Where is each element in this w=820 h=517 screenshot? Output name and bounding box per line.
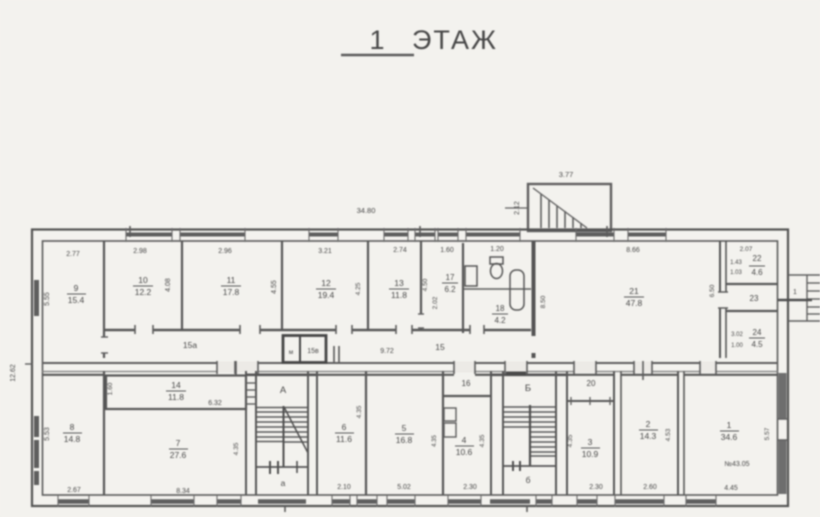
svg-text:10.9: 10.9	[582, 449, 599, 459]
svg-text:2.77: 2.77	[66, 251, 80, 258]
svg-text:а: а	[281, 478, 286, 488]
svg-text:8: 8	[70, 422, 75, 432]
svg-text:2.30: 2.30	[463, 484, 477, 491]
svg-text:16.8: 16.8	[396, 435, 413, 445]
svg-text:2.10: 2.10	[337, 484, 351, 491]
svg-text:1.20: 1.20	[490, 246, 504, 253]
svg-text:6: 6	[342, 422, 347, 432]
svg-text:7: 7	[176, 438, 181, 448]
svg-text:4.6: 4.6	[751, 268, 763, 277]
svg-text:б: б	[526, 475, 531, 485]
svg-text:15: 15	[435, 342, 445, 352]
svg-text:3.02: 3.02	[731, 332, 743, 338]
svg-text:1.00: 1.00	[731, 343, 743, 349]
svg-text:4.35: 4.35	[479, 434, 486, 447]
svg-text:5.55: 5.55	[44, 292, 51, 306]
svg-text:21: 21	[629, 286, 639, 296]
svg-text:23: 23	[750, 294, 759, 303]
svg-text:4.08: 4.08	[165, 278, 172, 292]
svg-text:11: 11	[227, 275, 236, 285]
svg-text:1: 1	[793, 289, 797, 296]
svg-text:10.6: 10.6	[456, 447, 473, 457]
svg-text:20: 20	[587, 379, 596, 388]
svg-text:15а: 15а	[183, 340, 197, 350]
svg-text:14.8: 14.8	[64, 434, 81, 444]
svg-text:11.6: 11.6	[336, 434, 352, 444]
svg-text:4.35: 4.35	[432, 435, 438, 447]
svg-text:5.53: 5.53	[44, 427, 51, 441]
svg-text:6.2: 6.2	[444, 285, 456, 294]
svg-text:3.77: 3.77	[559, 170, 574, 179]
svg-text:14.3: 14.3	[640, 431, 657, 441]
svg-text:10: 10	[138, 275, 148, 285]
svg-text:22: 22	[753, 254, 762, 263]
svg-text:11.8: 11.8	[168, 392, 184, 402]
svg-text:27.6: 27.6	[170, 450, 187, 460]
svg-text:4.5: 4.5	[751, 340, 763, 349]
svg-text:15.4: 15.4	[68, 295, 85, 305]
svg-text:1.43: 1.43	[730, 260, 742, 266]
svg-text:18: 18	[496, 304, 505, 313]
svg-text:13: 13	[394, 278, 404, 288]
svg-text:5.02: 5.02	[397, 484, 411, 491]
svg-text:6.50: 6.50	[709, 284, 716, 297]
svg-text:м: м	[289, 349, 294, 356]
svg-text:12.62: 12.62	[10, 364, 17, 382]
svg-text:17: 17	[446, 273, 455, 282]
svg-text:34.80: 34.80	[357, 206, 376, 215]
svg-text:16: 16	[462, 379, 471, 388]
svg-text:12: 12	[321, 278, 331, 288]
svg-text:4.53: 4.53	[665, 428, 672, 441]
svg-text:Б: Б	[525, 383, 531, 394]
svg-text:4.25: 4.25	[355, 282, 362, 295]
svg-text:2.96: 2.96	[218, 248, 232, 255]
svg-text:2.12: 2.12	[514, 201, 521, 215]
svg-text:2.07: 2.07	[740, 246, 753, 253]
svg-text:9: 9	[74, 283, 79, 293]
svg-text:12.2: 12.2	[135, 287, 152, 297]
svg-text:8.50: 8.50	[540, 295, 547, 308]
svg-text:4.35: 4.35	[356, 405, 363, 418]
svg-text:8.34: 8.34	[176, 488, 190, 495]
svg-text:6.32: 6.32	[208, 400, 222, 407]
svg-text:1: 1	[369, 25, 384, 55]
svg-text:1: 1	[727, 420, 732, 430]
svg-text:2.60: 2.60	[643, 484, 657, 491]
svg-text:4.45: 4.45	[724, 485, 738, 492]
svg-text:ЭТАЖ: ЭТАЖ	[412, 25, 498, 55]
svg-text:1.60: 1.60	[107, 382, 114, 395]
svg-text:47.8: 47.8	[626, 298, 643, 308]
svg-text:2.67: 2.67	[67, 487, 81, 494]
svg-text:17.8: 17.8	[223, 287, 240, 297]
svg-text:№43.05: №43.05	[724, 461, 749, 468]
svg-text:4.2: 4.2	[494, 316, 506, 325]
svg-text:9.72: 9.72	[380, 348, 394, 355]
svg-text:5.57: 5.57	[764, 427, 771, 440]
svg-text:15в: 15в	[307, 348, 319, 355]
svg-text:2.98: 2.98	[133, 248, 147, 255]
svg-text:4.35: 4.35	[233, 442, 240, 455]
svg-text:19.4: 19.4	[318, 290, 335, 300]
svg-text:14: 14	[171, 380, 181, 390]
svg-text:4.35: 4.35	[567, 434, 574, 447]
svg-text:4.50: 4.50	[422, 278, 429, 291]
svg-text:3.21: 3.21	[318, 248, 332, 255]
svg-text:1.03: 1.03	[730, 270, 742, 276]
svg-text:24: 24	[753, 328, 762, 337]
svg-text:2: 2	[646, 419, 651, 429]
svg-text:2.02: 2.02	[432, 296, 439, 309]
svg-text:8.66: 8.66	[626, 247, 640, 254]
svg-text:3: 3	[588, 437, 593, 447]
svg-text:34.6: 34.6	[721, 432, 738, 442]
svg-text:4.55: 4.55	[271, 280, 278, 294]
svg-text:2.74: 2.74	[393, 247, 407, 254]
svg-text:5: 5	[402, 423, 407, 433]
svg-text:1.60: 1.60	[440, 247, 454, 254]
svg-text:4: 4	[462, 435, 467, 445]
svg-text:А: А	[280, 385, 287, 396]
svg-text:11.8: 11.8	[391, 290, 407, 300]
svg-text:2.30: 2.30	[589, 484, 603, 491]
